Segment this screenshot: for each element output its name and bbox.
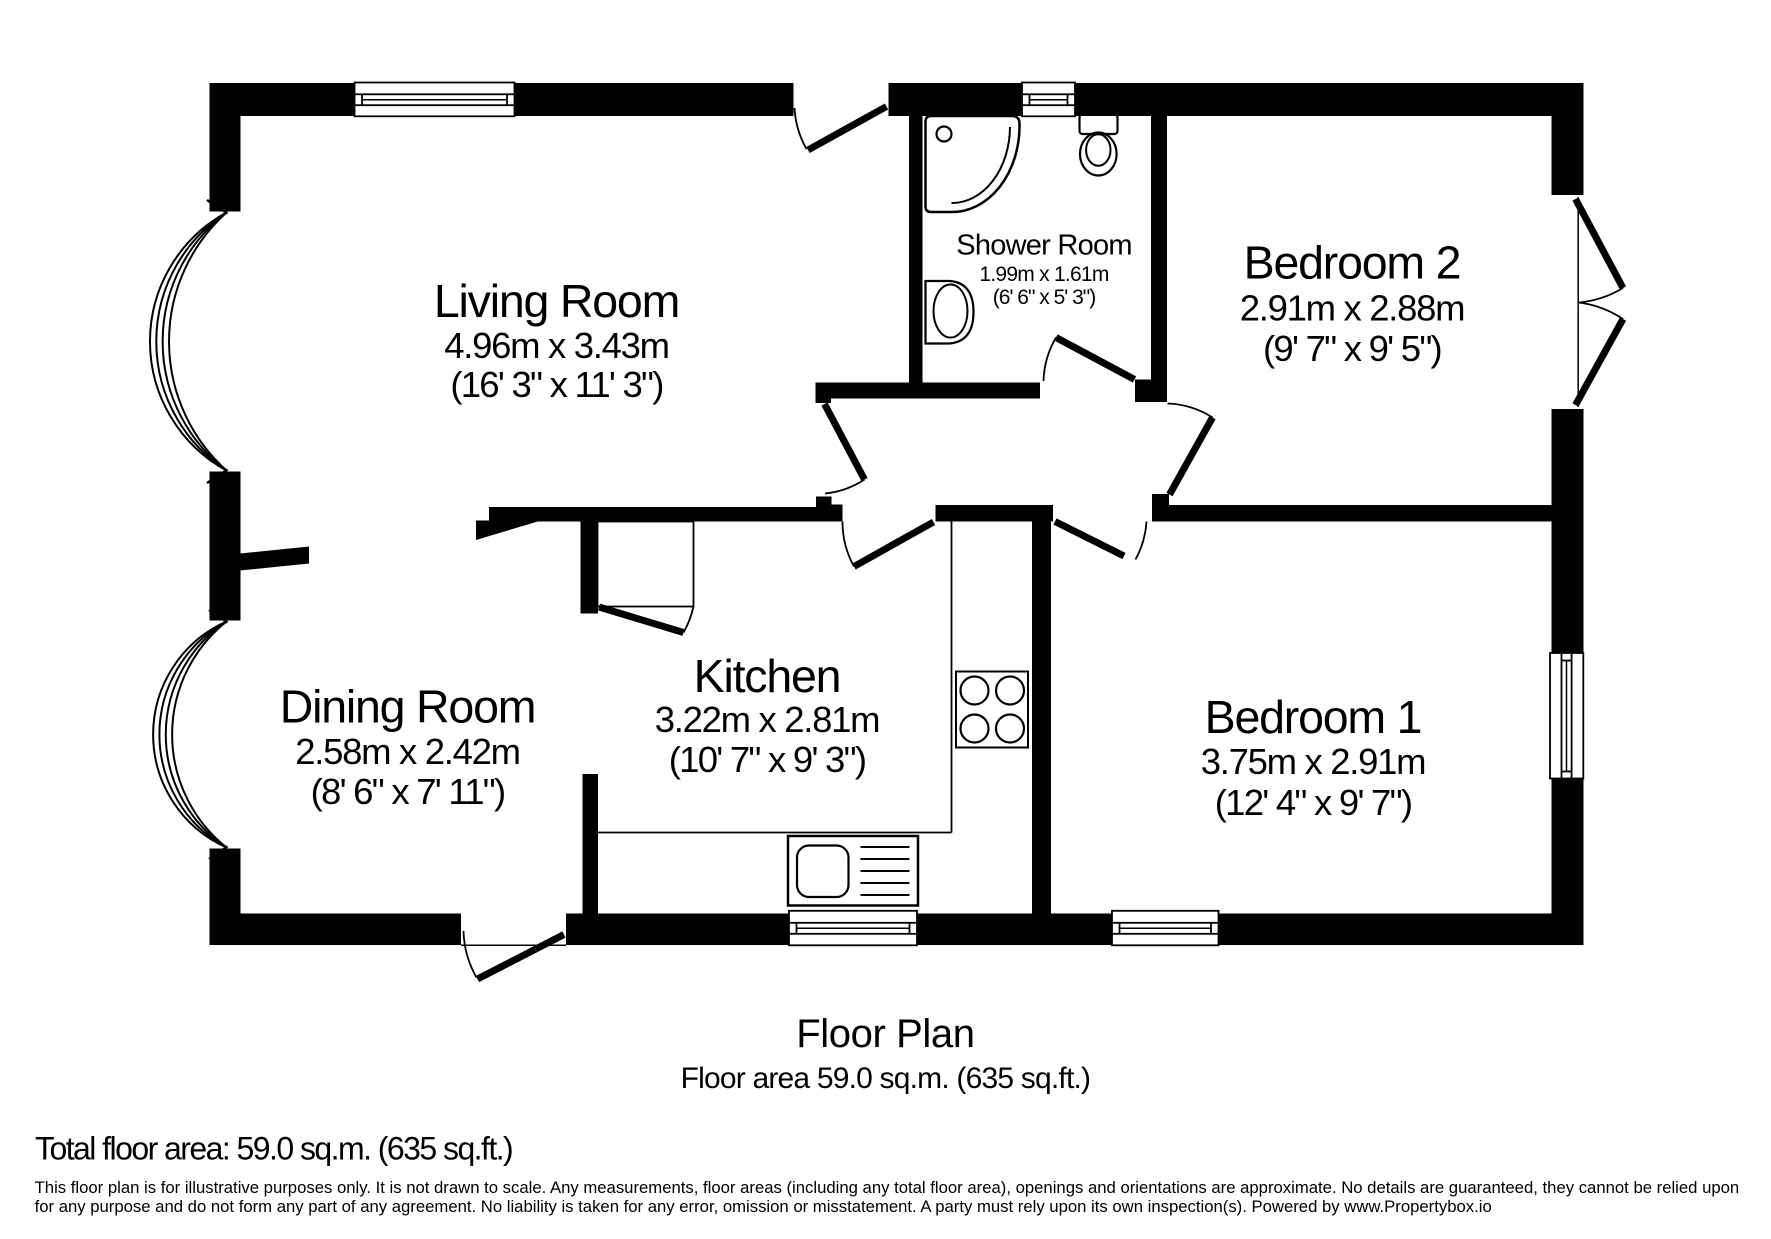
- svg-text:1.99m x 1.61m: 1.99m x 1.61m: [979, 263, 1108, 286]
- svg-text:Shower Room: Shower Room: [956, 230, 1132, 262]
- svg-text:Total floor area: 59.0 sq.m. (: Total floor area: 59.0 sq.m. (635 sq.ft.…: [35, 1131, 512, 1167]
- svg-text:This floor plan is for illustr: This floor plan is for illustrative purp…: [35, 1178, 1740, 1197]
- svg-text:Floor Plan: Floor Plan: [796, 1012, 974, 1056]
- svg-text:Floor area 59.0 sq.m. (635 sq.: Floor area 59.0 sq.m. (635 sq.ft.): [681, 1062, 1091, 1095]
- svg-text:Living Room: Living Room: [434, 275, 679, 327]
- svg-text:(8' 6" x 7' 11"): (8' 6" x 7' 11"): [311, 771, 505, 812]
- svg-text:4.96m x 3.43m: 4.96m x 3.43m: [444, 325, 669, 366]
- svg-text:3.75m x 2.91m: 3.75m x 2.91m: [1201, 741, 1426, 782]
- svg-text:(6' 6" x 5' 3"): (6' 6" x 5' 3"): [993, 286, 1095, 309]
- svg-text:3.22m x 2.81m: 3.22m x 2.81m: [655, 699, 880, 740]
- svg-text:Bedroom 2: Bedroom 2: [1244, 237, 1461, 289]
- svg-text:2.58m x 2.42m: 2.58m x 2.42m: [295, 731, 520, 772]
- svg-text:Kitchen: Kitchen: [694, 650, 841, 702]
- svg-text:(16' 3" x 11' 3"): (16' 3" x 11' 3"): [450, 364, 662, 405]
- svg-text:2.91m x 2.88m: 2.91m x 2.88m: [1240, 288, 1465, 329]
- svg-text:(12' 4" x 9' 7"): (12' 4" x 9' 7"): [1215, 782, 1411, 823]
- svg-text:(10' 7" x 9' 3"): (10' 7" x 9' 3"): [669, 739, 865, 780]
- svg-text:Dining Room: Dining Room: [280, 681, 536, 733]
- svg-text:(9' 7" x 9' 5"): (9' 7" x 9' 5"): [1263, 328, 1441, 369]
- svg-text:for any purpose and do not for: for any purpose and do not form any part…: [35, 1197, 1492, 1216]
- svg-text:Bedroom 1: Bedroom 1: [1205, 691, 1422, 743]
